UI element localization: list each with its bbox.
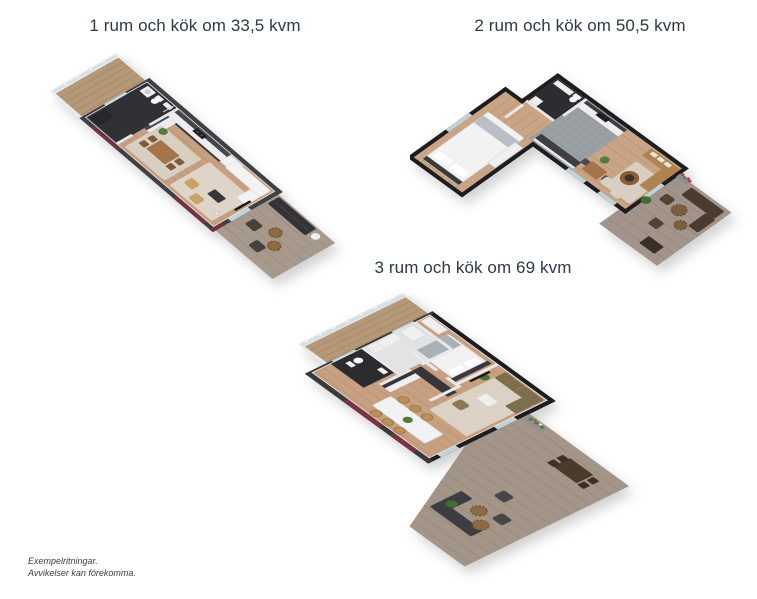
footnote-line2: Avvikelser kan förekomma. xyxy=(28,567,136,579)
floorplan-1-title: 1 rum och kök om 33,5 kvm xyxy=(50,16,340,36)
footnote-line1: Exempelritningar. xyxy=(28,555,136,567)
floorplan-sheet: 1 rum och kök om 33,5 kvm xyxy=(0,0,757,599)
floorplan-2-title: 2 rum och kök om 50,5 kvm xyxy=(410,16,750,36)
footnote: Exempelritningar. Avvikelser kan förekom… xyxy=(28,555,136,579)
floorplan-1-rendering xyxy=(50,52,340,300)
floorplan-3-title: 3 rum och kök om 69 kvm xyxy=(298,258,648,278)
floorplan-2-rendering xyxy=(410,56,750,268)
floorplan-3-rendering xyxy=(298,293,648,583)
